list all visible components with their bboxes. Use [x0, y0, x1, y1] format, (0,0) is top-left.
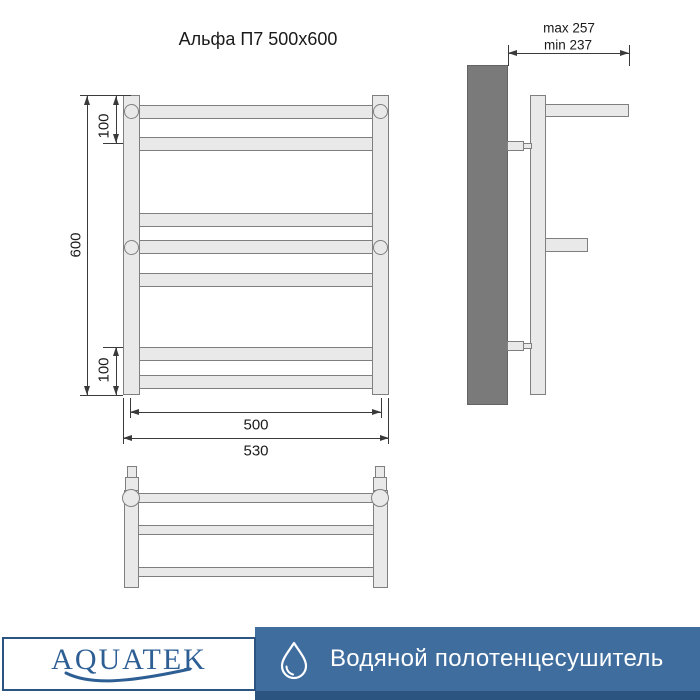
brand-logo: AQUATEK [2, 637, 256, 691]
footer-dark-strip [255, 691, 700, 700]
water-drop-icon [275, 641, 313, 681]
logo-wave-icon [62, 666, 194, 684]
drawing-sheet: Альфа П7 500x600 600 100 [0, 0, 700, 700]
footer: AQUATEK Водяной полотенцесушитель [0, 0, 700, 700]
product-type-label: Водяной полотенцесушитель [330, 644, 690, 674]
